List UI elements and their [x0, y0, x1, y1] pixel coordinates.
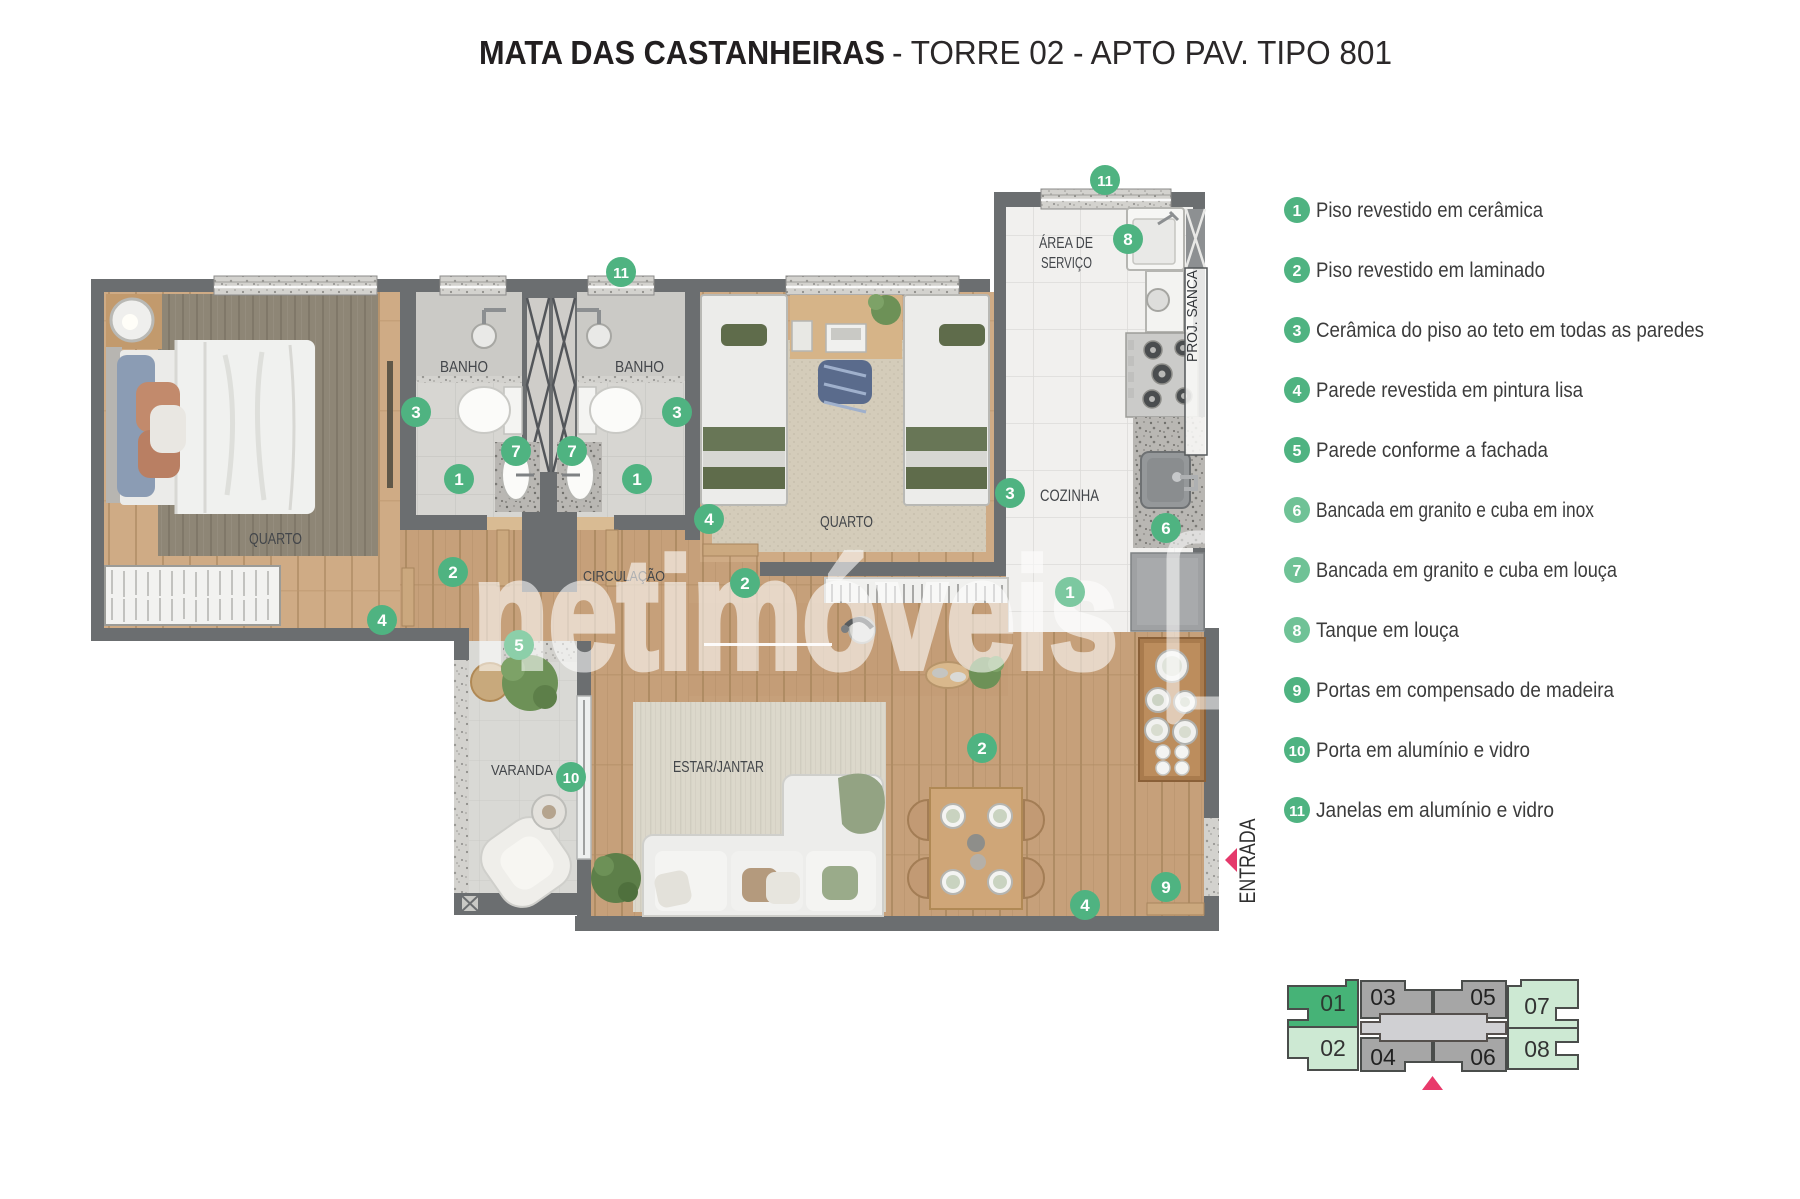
svg-text:Piso revestido em cerâmica: Piso revestido em cerâmica — [1316, 199, 1543, 222]
svg-text:QUARTO: QUARTO — [249, 531, 302, 548]
svg-text:Parede revestida em pintura li: Parede revestida em pintura lisa — [1316, 379, 1583, 402]
svg-text:Tanque em louça: Tanque em louça — [1316, 619, 1459, 642]
svg-text:VARANDA: VARANDA — [491, 763, 553, 779]
svg-text:BANHO: BANHO — [440, 359, 488, 376]
svg-text:11: 11 — [1289, 803, 1305, 820]
svg-text:Portas em compensado de madeir: Portas em compensado de madeira — [1316, 679, 1614, 702]
svg-text:1: 1 — [632, 470, 641, 489]
svg-text:1: 1 — [1065, 583, 1074, 602]
svg-text:SERVIÇO: SERVIÇO — [1041, 255, 1092, 272]
svg-text:Bancada em granito e cuba em i: Bancada em granito e cuba em inox — [1316, 499, 1594, 522]
svg-text:8: 8 — [1293, 623, 1302, 640]
svg-text:7: 7 — [567, 442, 576, 461]
svg-text:10: 10 — [563, 770, 580, 787]
svg-text:ESTAR/JANTAR: ESTAR/JANTAR — [673, 759, 764, 776]
svg-text:Cerâmica do piso ao teto em to: Cerâmica do piso ao teto em todas as par… — [1316, 319, 1704, 342]
svg-text:08: 08 — [1524, 1036, 1550, 1062]
svg-text:10: 10 — [1289, 743, 1306, 760]
svg-text:3: 3 — [1005, 484, 1014, 503]
svg-text:01: 01 — [1320, 990, 1346, 1016]
svg-text:1: 1 — [454, 470, 463, 489]
svg-text:netimóveis: netimóveis — [473, 527, 1118, 702]
svg-text:Piso revestido em laminado: Piso revestido em laminado — [1316, 259, 1545, 282]
svg-text:4: 4 — [1293, 383, 1302, 400]
svg-text:2: 2 — [740, 574, 749, 593]
svg-text:9: 9 — [1161, 878, 1170, 897]
svg-text:6: 6 — [1161, 519, 1170, 538]
svg-text:11: 11 — [613, 265, 629, 282]
svg-text:9: 9 — [1293, 683, 1302, 700]
svg-text:3: 3 — [1293, 323, 1302, 340]
svg-text:Janelas em alumínio e vidro: Janelas em alumínio e vidro — [1316, 799, 1554, 822]
svg-text:Porta em alumínio e vidro: Porta em alumínio e vidro — [1316, 739, 1530, 762]
svg-text:ÁREA DE: ÁREA DE — [1039, 233, 1093, 252]
svg-text:07: 07 — [1524, 993, 1550, 1019]
svg-text:5: 5 — [1293, 443, 1302, 460]
svg-text:06: 06 — [1470, 1044, 1496, 1070]
svg-text:2: 2 — [448, 563, 457, 582]
svg-text:PROJ. SANCA: PROJ. SANCA — [1184, 270, 1201, 362]
svg-text:Parede conforme a fachada: Parede conforme a fachada — [1316, 439, 1548, 462]
svg-text:7: 7 — [1293, 563, 1302, 580]
svg-text:02: 02 — [1320, 1035, 1346, 1061]
svg-text:COZINHA: COZINHA — [1040, 487, 1099, 505]
svg-text:MATA DAS CASTANHEIRAS: MATA DAS CASTANHEIRAS — [479, 34, 885, 71]
svg-text:8: 8 — [1123, 230, 1132, 249]
svg-text:11: 11 — [1097, 173, 1113, 190]
svg-text:2: 2 — [1293, 263, 1302, 280]
svg-text:5: 5 — [514, 636, 523, 655]
svg-text:2: 2 — [977, 739, 986, 758]
svg-text:BANHO: BANHO — [615, 359, 664, 376]
svg-text:6: 6 — [1293, 503, 1302, 520]
svg-text:- TORRE 02 - APTO PAV. TIPO 80: - TORRE 02 - APTO PAV. TIPO 801 — [892, 34, 1392, 71]
svg-text:7: 7 — [511, 442, 520, 461]
svg-text:3: 3 — [672, 403, 681, 422]
svg-text:4: 4 — [377, 611, 387, 630]
svg-text:3: 3 — [411, 403, 420, 422]
svg-text:ENTRADA: ENTRADA — [1235, 818, 1260, 903]
svg-text:04: 04 — [1370, 1044, 1396, 1070]
svg-text:1: 1 — [1293, 203, 1302, 220]
svg-text:4: 4 — [1080, 896, 1090, 915]
svg-text:05: 05 — [1470, 984, 1496, 1010]
svg-text:4: 4 — [704, 510, 714, 529]
svg-text:Bancada em granito e cuba em l: Bancada em granito e cuba em louça — [1316, 559, 1617, 582]
svg-text:03: 03 — [1370, 984, 1396, 1010]
